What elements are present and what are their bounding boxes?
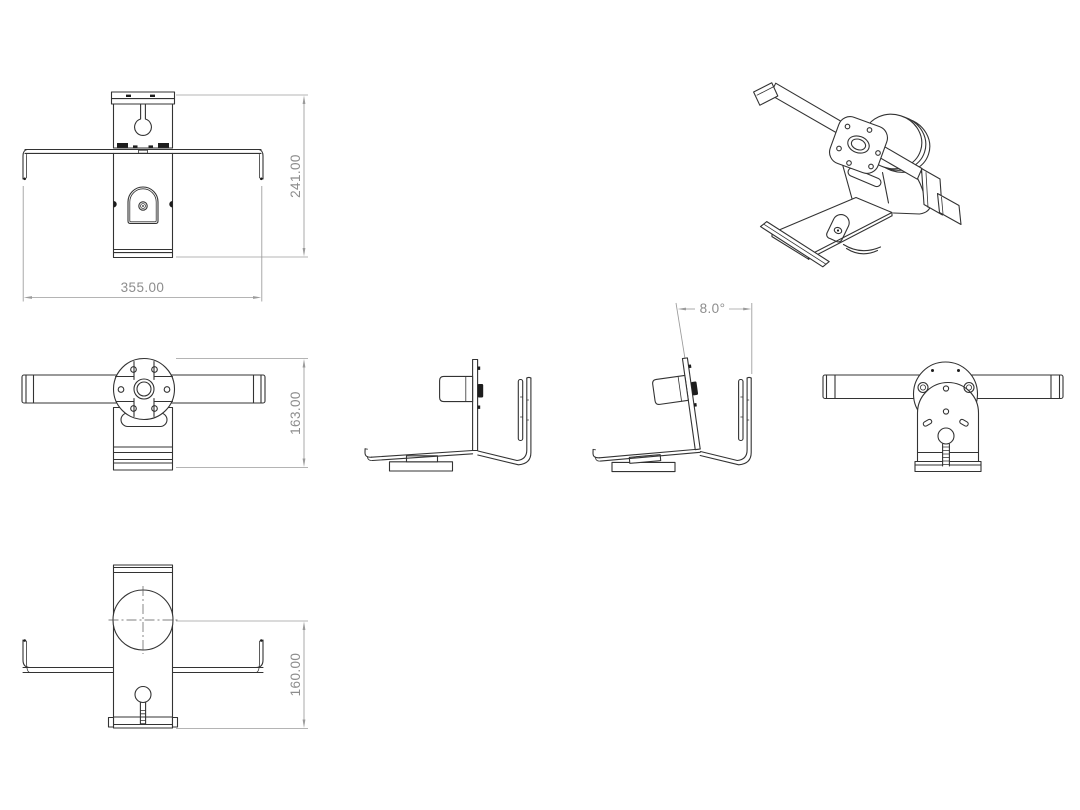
side-view-tilted: 8.0°: [593, 301, 752, 472]
technical-drawing-canvas: 241.00 355.00: [0, 0, 1080, 810]
hub-cylinder-side: [440, 376, 473, 401]
bracket-body-top: [109, 565, 178, 728]
dimension-top-depth: 160.00: [176, 621, 308, 729]
lip-plate-tilted: [739, 380, 743, 441]
keyhole-circle-top: [135, 687, 151, 703]
hub-cylinder-tilted: [652, 375, 688, 405]
isometric-view: [754, 83, 961, 267]
hub-rear: [114, 359, 175, 420]
mount-plate-tilted: [682, 358, 700, 450]
top-view: 160.00: [23, 565, 308, 729]
bracket-body-front: [114, 153, 173, 257]
mount-plate-tilted-group: [650, 357, 706, 454]
dimension-label-front-width: 355.00: [121, 280, 165, 295]
rear-view: 163.00: [22, 359, 308, 471]
dimension-front-height: 241.00: [176, 95, 308, 257]
hub-disc-rear: [114, 359, 175, 420]
front-view-lower: [823, 362, 1063, 472]
lip-plate: [518, 380, 522, 441]
dimension-label-top-depth: 160.00: [288, 653, 303, 697]
mount-plate-side: [473, 360, 478, 451]
clip-right: [158, 143, 169, 148]
dimension-label-front-height: 241.00: [288, 154, 303, 198]
clip-left: [117, 143, 128, 148]
keyhole-slot: [135, 104, 152, 135]
dimension-label-tilt-angle: 8.0°: [700, 301, 726, 316]
front-view: 241.00 355.00: [23, 92, 308, 302]
tab-right: [173, 718, 178, 728]
dimension-label-rear-height: 163.00: [288, 391, 303, 435]
clamp-knob: [478, 384, 484, 398]
tab-left: [109, 718, 114, 728]
base-pad-tilted: [612, 462, 675, 471]
side-view: [365, 360, 531, 472]
support-arm-front: [23, 150, 263, 181]
base-pad: [390, 462, 453, 471]
side-flange-right: [938, 194, 962, 225]
mount-plate-front: [112, 92, 175, 148]
